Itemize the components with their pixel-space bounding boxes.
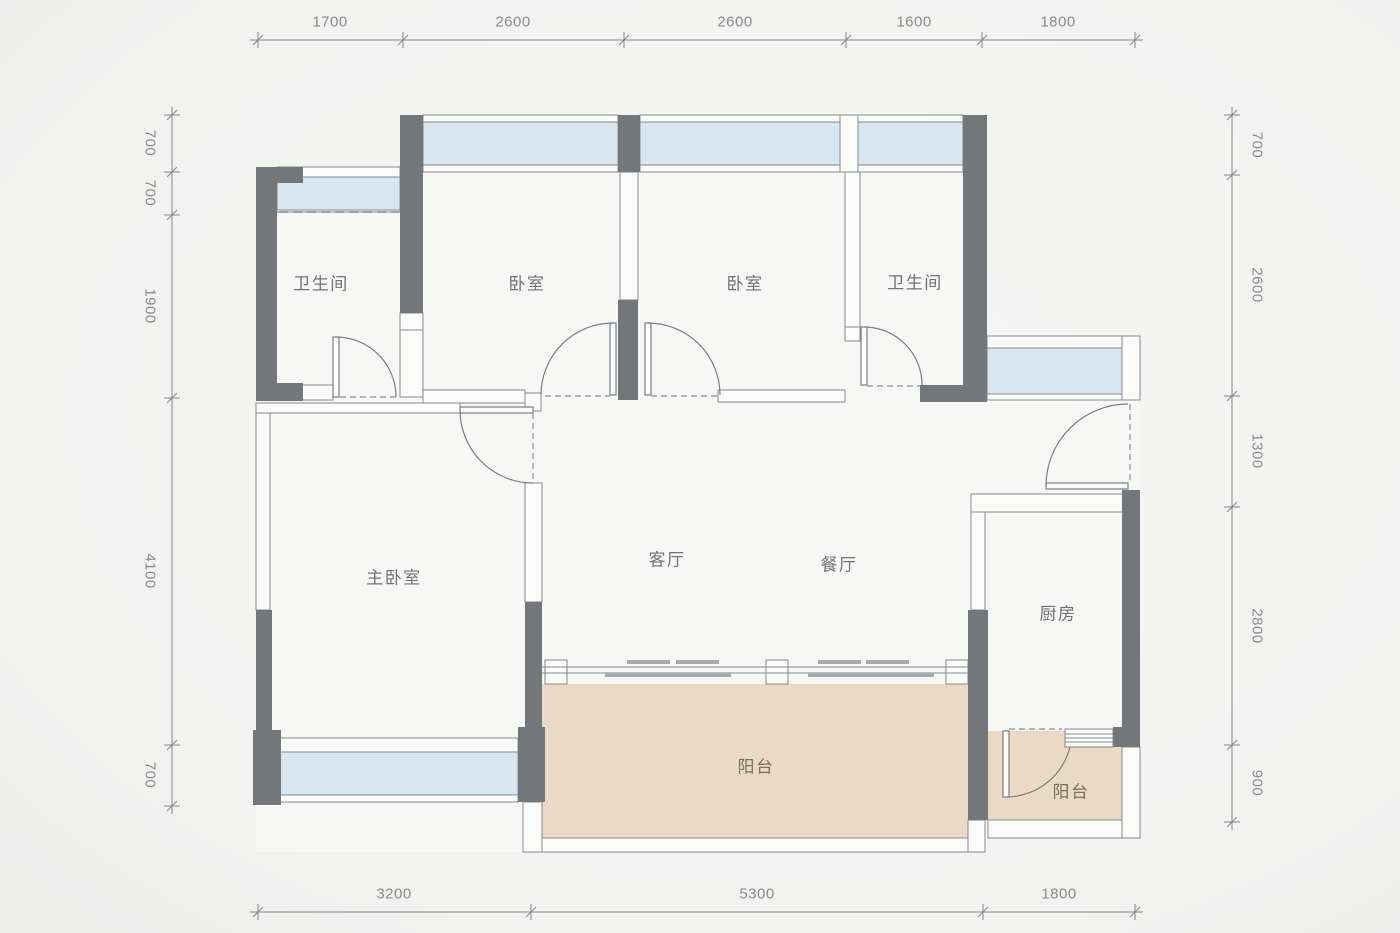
dim-right-5: 900 [1249,770,1266,797]
dim-left-1: 700 [142,130,159,157]
room-label-kitchen: 厨房 [1040,600,1077,625]
dim-top-2: 2600 [495,14,530,31]
dimension-line-right [1224,107,1240,830]
dim-bottom-3: 1800 [1041,886,1076,903]
room-label-dining-room: 餐厅 [821,551,858,576]
dim-top-3: 2600 [717,14,752,31]
room-label-living-room: 客厅 [649,546,686,571]
room-label-bathroom-top-right: 卫生间 [887,269,943,294]
dim-right-2: 2600 [1249,267,1266,302]
room-label-balcony-small: 阳台 [1053,778,1090,803]
louver-panel [1065,729,1113,747]
floor-plan-canvas: 卫生间 卧室 卧室 卫生间 主卧室 客厅 餐厅 厨房 阳台 阳台 1700 26… [0,0,1400,933]
bathroom-1-door-leaf [333,337,339,397]
dim-left-5: 700 [142,762,159,789]
dimension-line-left [164,107,180,814]
dim-top-5: 1800 [1040,14,1075,31]
room-label-bathroom-top-left: 卫生间 [293,270,349,295]
dim-top-1: 1700 [312,14,347,31]
dim-top-4: 1600 [896,14,931,31]
master-door-leaf [460,407,533,413]
bathroom-2-door-leaf [861,327,867,385]
dim-left-4: 4100 [142,553,159,588]
bedroom-2-door-leaf [645,323,651,395]
dim-bottom-2: 5300 [739,886,774,903]
dim-bottom-1: 3200 [376,886,411,903]
dimension-line-bottom [250,904,1143,920]
dim-left-2: 700 [142,180,159,207]
dim-right-4: 2800 [1249,608,1266,643]
room-label-bedroom-right: 卧室 [727,270,764,295]
dimension-line-top [250,32,1143,48]
room-label-master-bedroom: 主卧室 [366,564,422,589]
entry-door-leaf [1046,483,1128,489]
dim-left-3: 1900 [142,288,159,323]
room-label-balcony-main: 阳台 [738,753,775,778]
kitchen-balcony-door-leaf [1003,731,1009,797]
bedroom-1-door-leaf [610,323,616,395]
room-label-bedroom-left: 卧室 [509,270,546,295]
dim-right-3: 1300 [1249,433,1266,468]
floor-plan-drawing [0,0,1400,933]
dim-right-1: 700 [1249,132,1266,159]
